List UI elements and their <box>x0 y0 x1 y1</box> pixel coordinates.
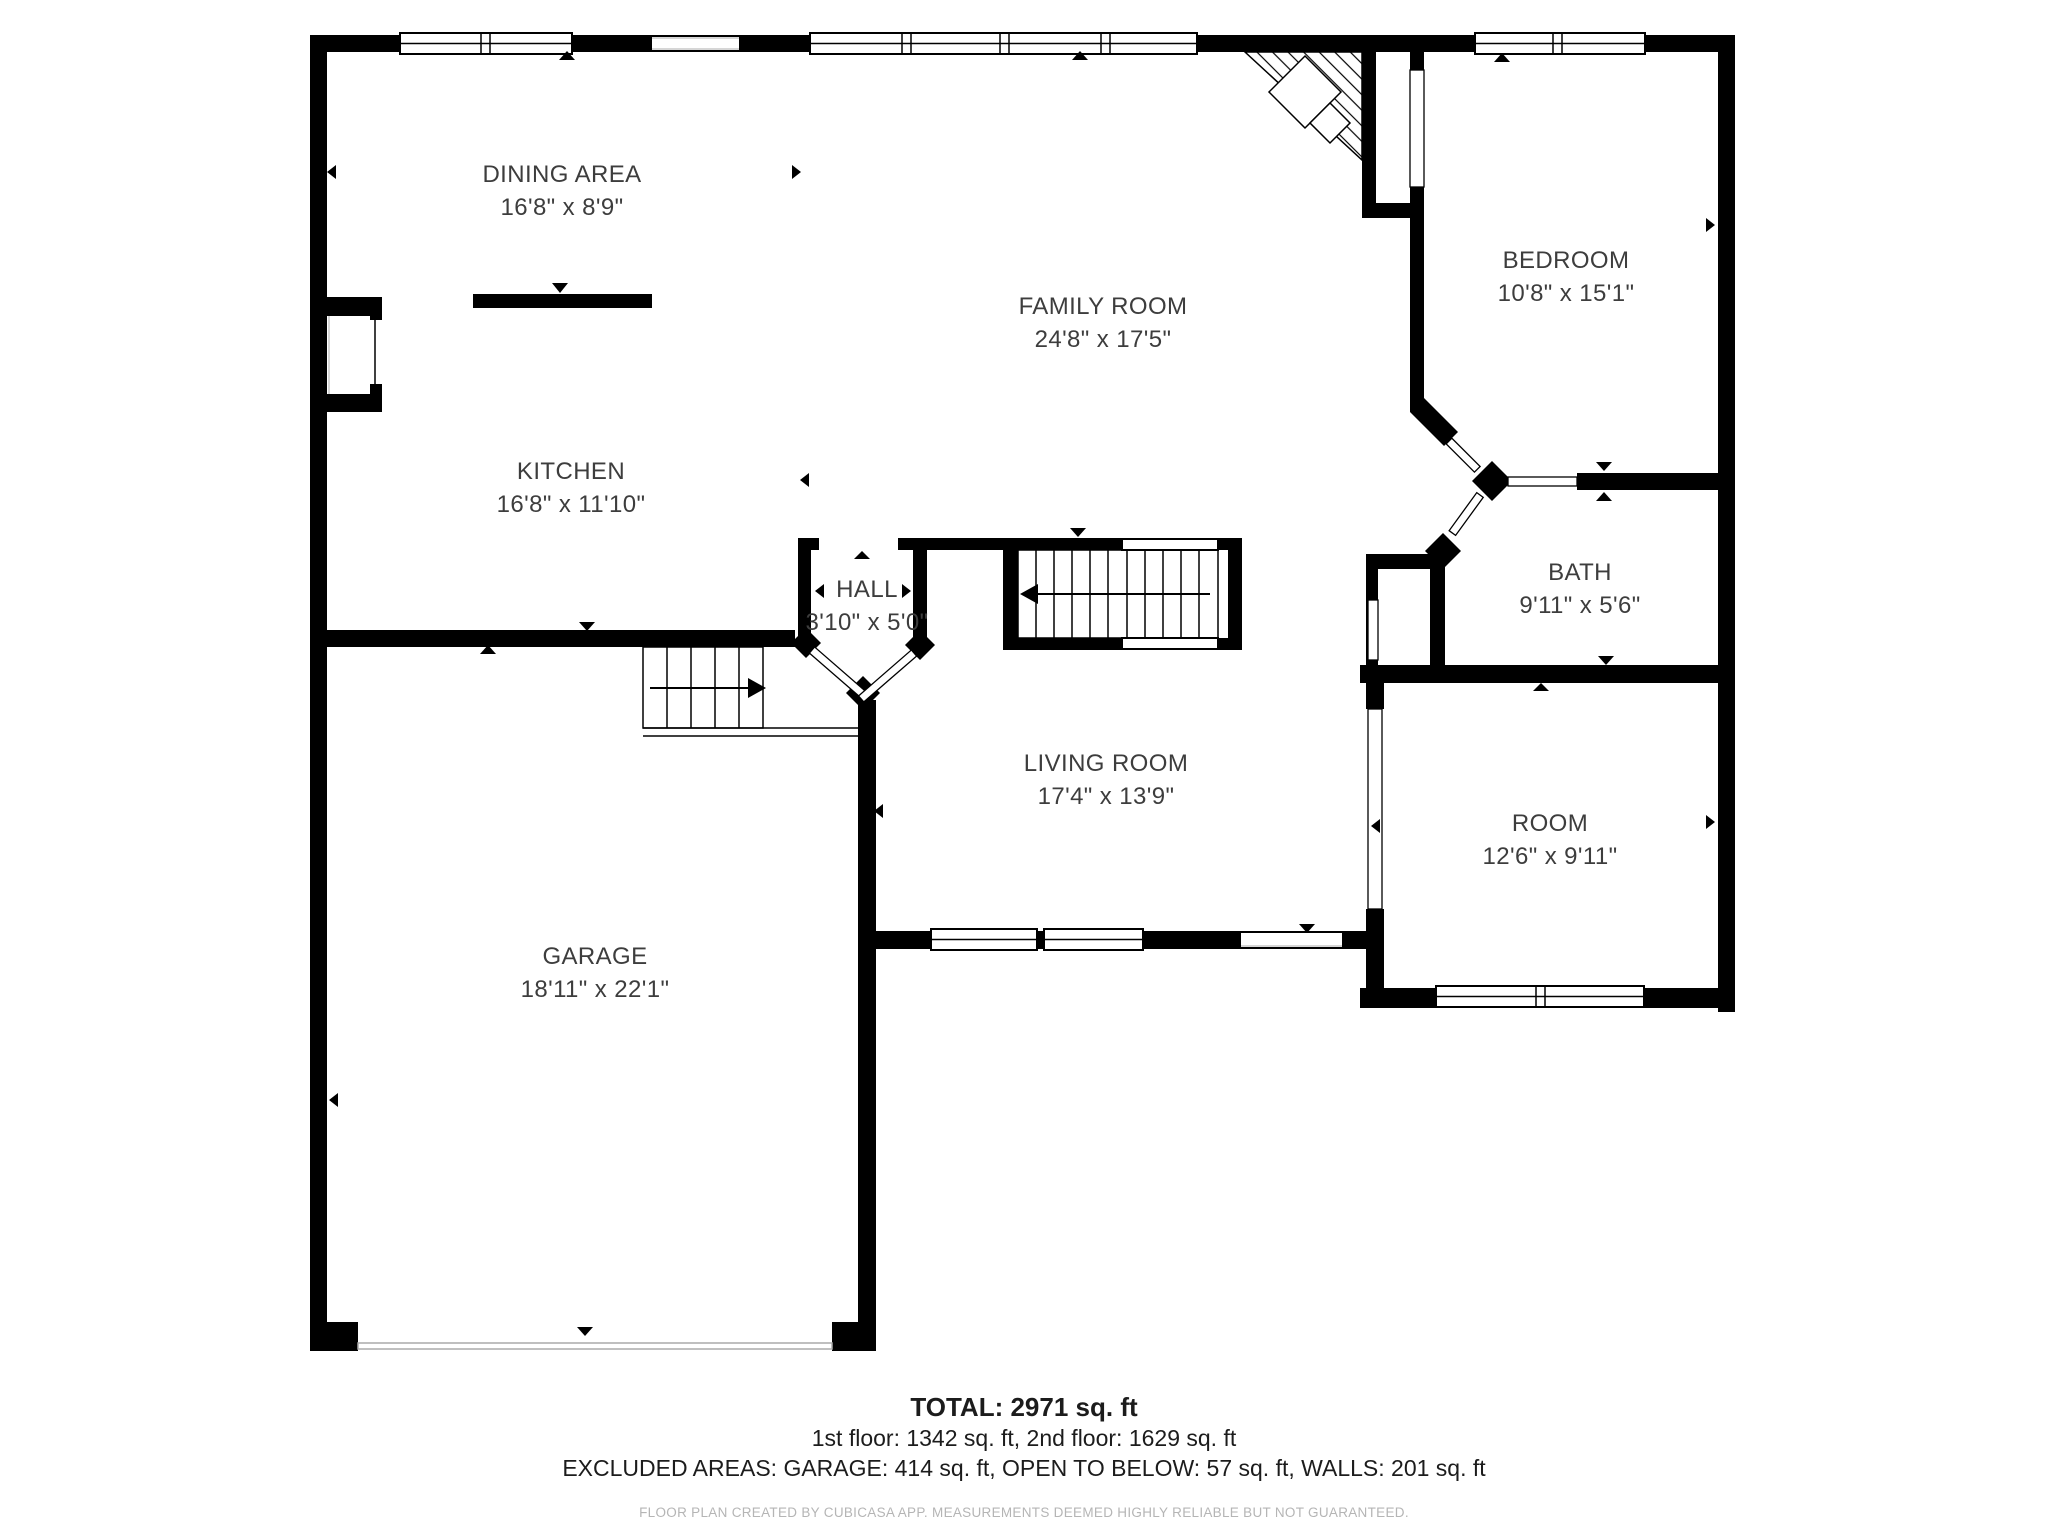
room-dimensions: 18'11" x 22'1" <box>521 973 670 1006</box>
room-name: DINING AREA <box>482 158 641 191</box>
excluded-areas: EXCLUDED AREAS: GARAGE: 414 sq. ft, OPEN… <box>0 1453 2048 1483</box>
room-dimensions: 24'8" x 17'5" <box>1019 323 1188 356</box>
window-room <box>1436 986 1644 1007</box>
window-dining <box>400 33 572 54</box>
room-name: FAMILY ROOM <box>1019 290 1188 323</box>
room-label-room: ROOM 12'6" x 9'11" <box>1482 807 1617 873</box>
garage-door <box>358 1343 832 1349</box>
disclaimer-text: FLOOR PLAN CREATED BY CUBICASA APP. MEAS… <box>0 1505 2048 1520</box>
room-dimensions: 12'6" x 9'11" <box>1482 840 1617 873</box>
window-bedroom <box>1475 33 1645 54</box>
room-label-dining: DINING AREA 16'8" x 8'9" <box>482 158 641 224</box>
floor-areas: 1st floor: 1342 sq. ft, 2nd floor: 1629 … <box>0 1423 2048 1453</box>
room-name: ROOM <box>1482 807 1617 840</box>
interior-walls <box>310 52 1718 709</box>
staircase-upper <box>1018 550 1218 638</box>
room-label-garage: GARAGE 18'11" x 22'1" <box>521 940 670 1006</box>
stair-railing-bottom <box>1122 638 1218 649</box>
room-label-hall: HALL 3'10" x 5'0" <box>805 573 928 639</box>
room-label-bath: BATH 9'11" x 5'6" <box>1519 556 1640 622</box>
corner-fireplace-icon <box>1245 52 1362 160</box>
windows <box>358 33 1645 1349</box>
exterior-walls <box>310 35 1735 1351</box>
window-living-room <box>931 929 1143 950</box>
room-name: KITCHEN <box>497 455 646 488</box>
room-dimensions: 10'8" x 15'1" <box>1498 277 1635 310</box>
room-dimensions: 9'11" x 5'6" <box>1519 589 1640 622</box>
window-family-room <box>810 33 1197 54</box>
dining-fireplace-icon <box>327 297 382 412</box>
kitchen-half-wall <box>473 294 652 308</box>
room-name: HALL <box>805 573 928 606</box>
area-summary: TOTAL: 2971 sq. ft 1st floor: 1342 sq. f… <box>0 1392 2048 1483</box>
room-name: GARAGE <box>521 940 670 973</box>
room-label-bedroom: BEDROOM 10'8" x 15'1" <box>1498 244 1635 310</box>
room-label-living-room: LIVING ROOM 17'4" x 13'9" <box>1024 747 1188 813</box>
total-area: TOTAL: 2971 sq. ft <box>0 1392 2048 1423</box>
room-name: BATH <box>1519 556 1640 589</box>
room-dimensions: 17'4" x 13'9" <box>1024 780 1188 813</box>
room-label-family-room: FAMILY ROOM 24'8" x 17'5" <box>1019 290 1188 356</box>
room-name: BEDROOM <box>1498 244 1635 277</box>
stair-railing-top <box>1122 539 1218 550</box>
room-name: LIVING ROOM <box>1024 747 1188 780</box>
room-dimensions: 3'10" x 5'0" <box>805 606 928 639</box>
floor-plan-page: DINING AREA 16'8" x 8'9" KITCHEN 16'8" x… <box>0 0 2048 1536</box>
room-dimensions: 16'8" x 11'10" <box>497 488 646 521</box>
room-dimensions: 16'8" x 8'9" <box>482 191 641 224</box>
room-label-kitchen: KITCHEN 16'8" x 11'10" <box>497 455 646 521</box>
